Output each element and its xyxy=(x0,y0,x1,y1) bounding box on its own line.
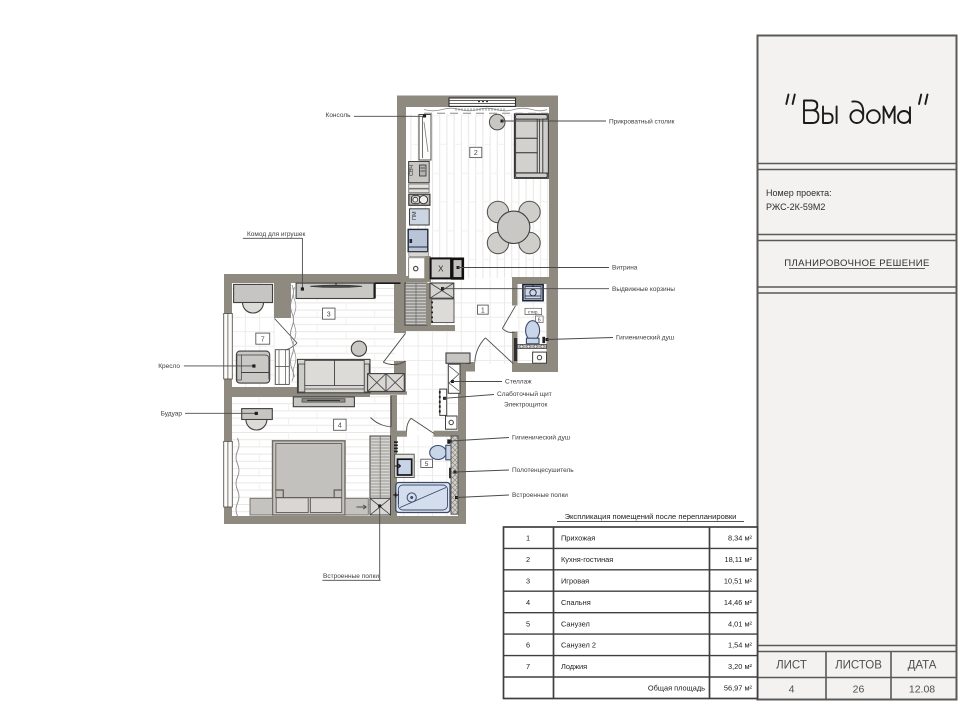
svg-text:Прикроватный столик: Прикроватный столик xyxy=(609,117,675,125)
svg-text:4: 4 xyxy=(338,422,342,429)
svg-text:Кресло: Кресло xyxy=(158,363,180,370)
svg-text:ПЛАНИРОВОЧНОЕ РЕШЕНИЕ: ПЛАНИРОВОЧНОЕ РЕШЕНИЕ xyxy=(784,258,930,269)
svg-text:Полотенцесушитель: Полотенцесушитель xyxy=(512,467,574,474)
svg-text:7: 7 xyxy=(526,662,530,671)
svg-text:Витрина: Витрина xyxy=(612,265,638,272)
svg-text:4: 4 xyxy=(526,598,530,607)
svg-text:18,11 м²: 18,11 м² xyxy=(724,555,752,564)
svg-text:Спальня: Спальня xyxy=(561,598,591,607)
svg-text:4,01 м²: 4,01 м² xyxy=(728,619,753,628)
svg-text:Встроенные полки: Встроенные полки xyxy=(512,492,568,499)
svg-text:ДАТА: ДАТА xyxy=(908,660,937,672)
svg-text:Будуар: Будуар xyxy=(161,411,183,418)
svg-text:Кухня-гостиная: Кухня-гостиная xyxy=(561,555,613,564)
svg-text:3: 3 xyxy=(327,311,331,318)
svg-text:Встроенные полки: Встроенные полки xyxy=(323,573,379,580)
svg-text:8,34 м²: 8,34 м² xyxy=(728,534,753,543)
svg-text:12.08: 12.08 xyxy=(909,684,935,696)
svg-text:14,46 м²: 14,46 м² xyxy=(724,598,753,607)
svg-text:1,54 м²: 1,54 м² xyxy=(728,641,753,650)
svg-text:стир.: стир. xyxy=(528,309,539,314)
svg-text:X: X xyxy=(438,265,444,274)
svg-text:5: 5 xyxy=(425,461,429,468)
svg-text:5: 5 xyxy=(526,619,530,628)
svg-text:3: 3 xyxy=(526,576,530,585)
svg-text:Слаботочный щит: Слаботочный щит xyxy=(497,390,552,398)
svg-text:10,51 м²: 10,51 м² xyxy=(724,576,753,585)
svg-text:1: 1 xyxy=(526,534,530,543)
svg-text:26: 26 xyxy=(853,684,865,696)
svg-text:РЖС-2К-59М2: РЖС-2К-59М2 xyxy=(766,202,825,212)
svg-text:ЛИСТОВ: ЛИСТОВ xyxy=(835,660,882,672)
svg-text:Лоджия: Лоджия xyxy=(561,662,587,671)
svg-text:Электрощиток: Электрощиток xyxy=(504,402,547,409)
svg-text:Игровая: Игровая xyxy=(561,576,589,585)
svg-text:Консоль: Консоль xyxy=(326,112,352,119)
svg-text:Стеллаж: Стеллаж xyxy=(505,379,532,386)
svg-text:7: 7 xyxy=(261,336,265,343)
svg-text:2: 2 xyxy=(526,555,530,564)
svg-text:1: 1 xyxy=(481,307,485,314)
svg-text:ЛИСТ: ЛИСТ xyxy=(776,660,807,672)
svg-text:Прихожая: Прихожая xyxy=(561,534,595,543)
svg-text:Гигиенический душ: Гигиенический душ xyxy=(616,334,674,342)
svg-text:Общая площадь: Общая площадь xyxy=(648,684,705,693)
svg-text:6: 6 xyxy=(538,317,541,323)
svg-text:2: 2 xyxy=(474,150,478,157)
svg-text:6: 6 xyxy=(526,641,530,650)
svg-text:Комод для игрушек: Комод для игрушек xyxy=(247,231,305,238)
svg-text:3,20 м²: 3,20 м² xyxy=(728,662,753,671)
svg-text:56,97 м²: 56,97 м² xyxy=(724,684,753,693)
svg-text:4: 4 xyxy=(789,684,795,696)
svg-text:ПМ: ПМ xyxy=(412,211,418,220)
svg-text:Санузел: Санузел xyxy=(561,619,590,628)
svg-text:Санузел 2: Санузел 2 xyxy=(561,641,596,650)
svg-text:Номер проекта:: Номер проекта: xyxy=(766,188,832,198)
svg-text:Выдвижные корзины: Выдвижные корзины xyxy=(612,286,675,293)
svg-text:СВЧ: СВЧ xyxy=(409,165,415,176)
svg-text:Гигиенический душ: Гигиенический душ xyxy=(512,434,570,442)
svg-text:Экспликация помещений после пе: Экспликация помещений после перепланиров… xyxy=(565,512,737,521)
